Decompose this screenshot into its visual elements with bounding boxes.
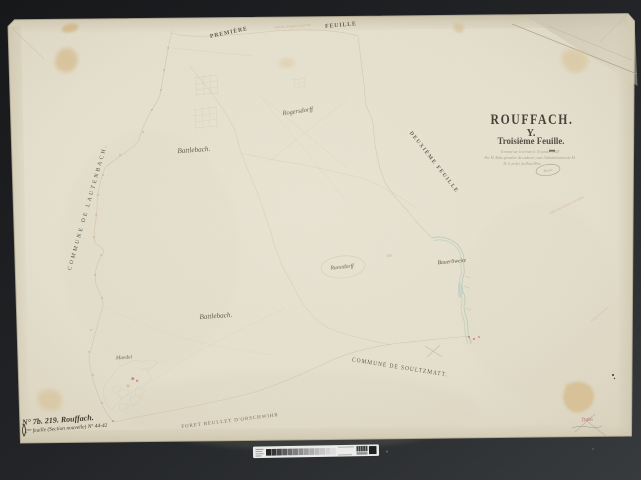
svg-text:Maedel: Maedel xyxy=(115,355,133,362)
svg-text:308: 308 xyxy=(385,253,392,259)
svg-text:Troisième Feuille.: Troisième Feuille. xyxy=(498,137,565,147)
svg-text:ROUFFACH.: ROUFFACH. xyxy=(491,112,574,128)
svg-text:M. le préfet du Haut-Rhin: M. le préfet du Haut-Rhin xyxy=(502,162,540,166)
